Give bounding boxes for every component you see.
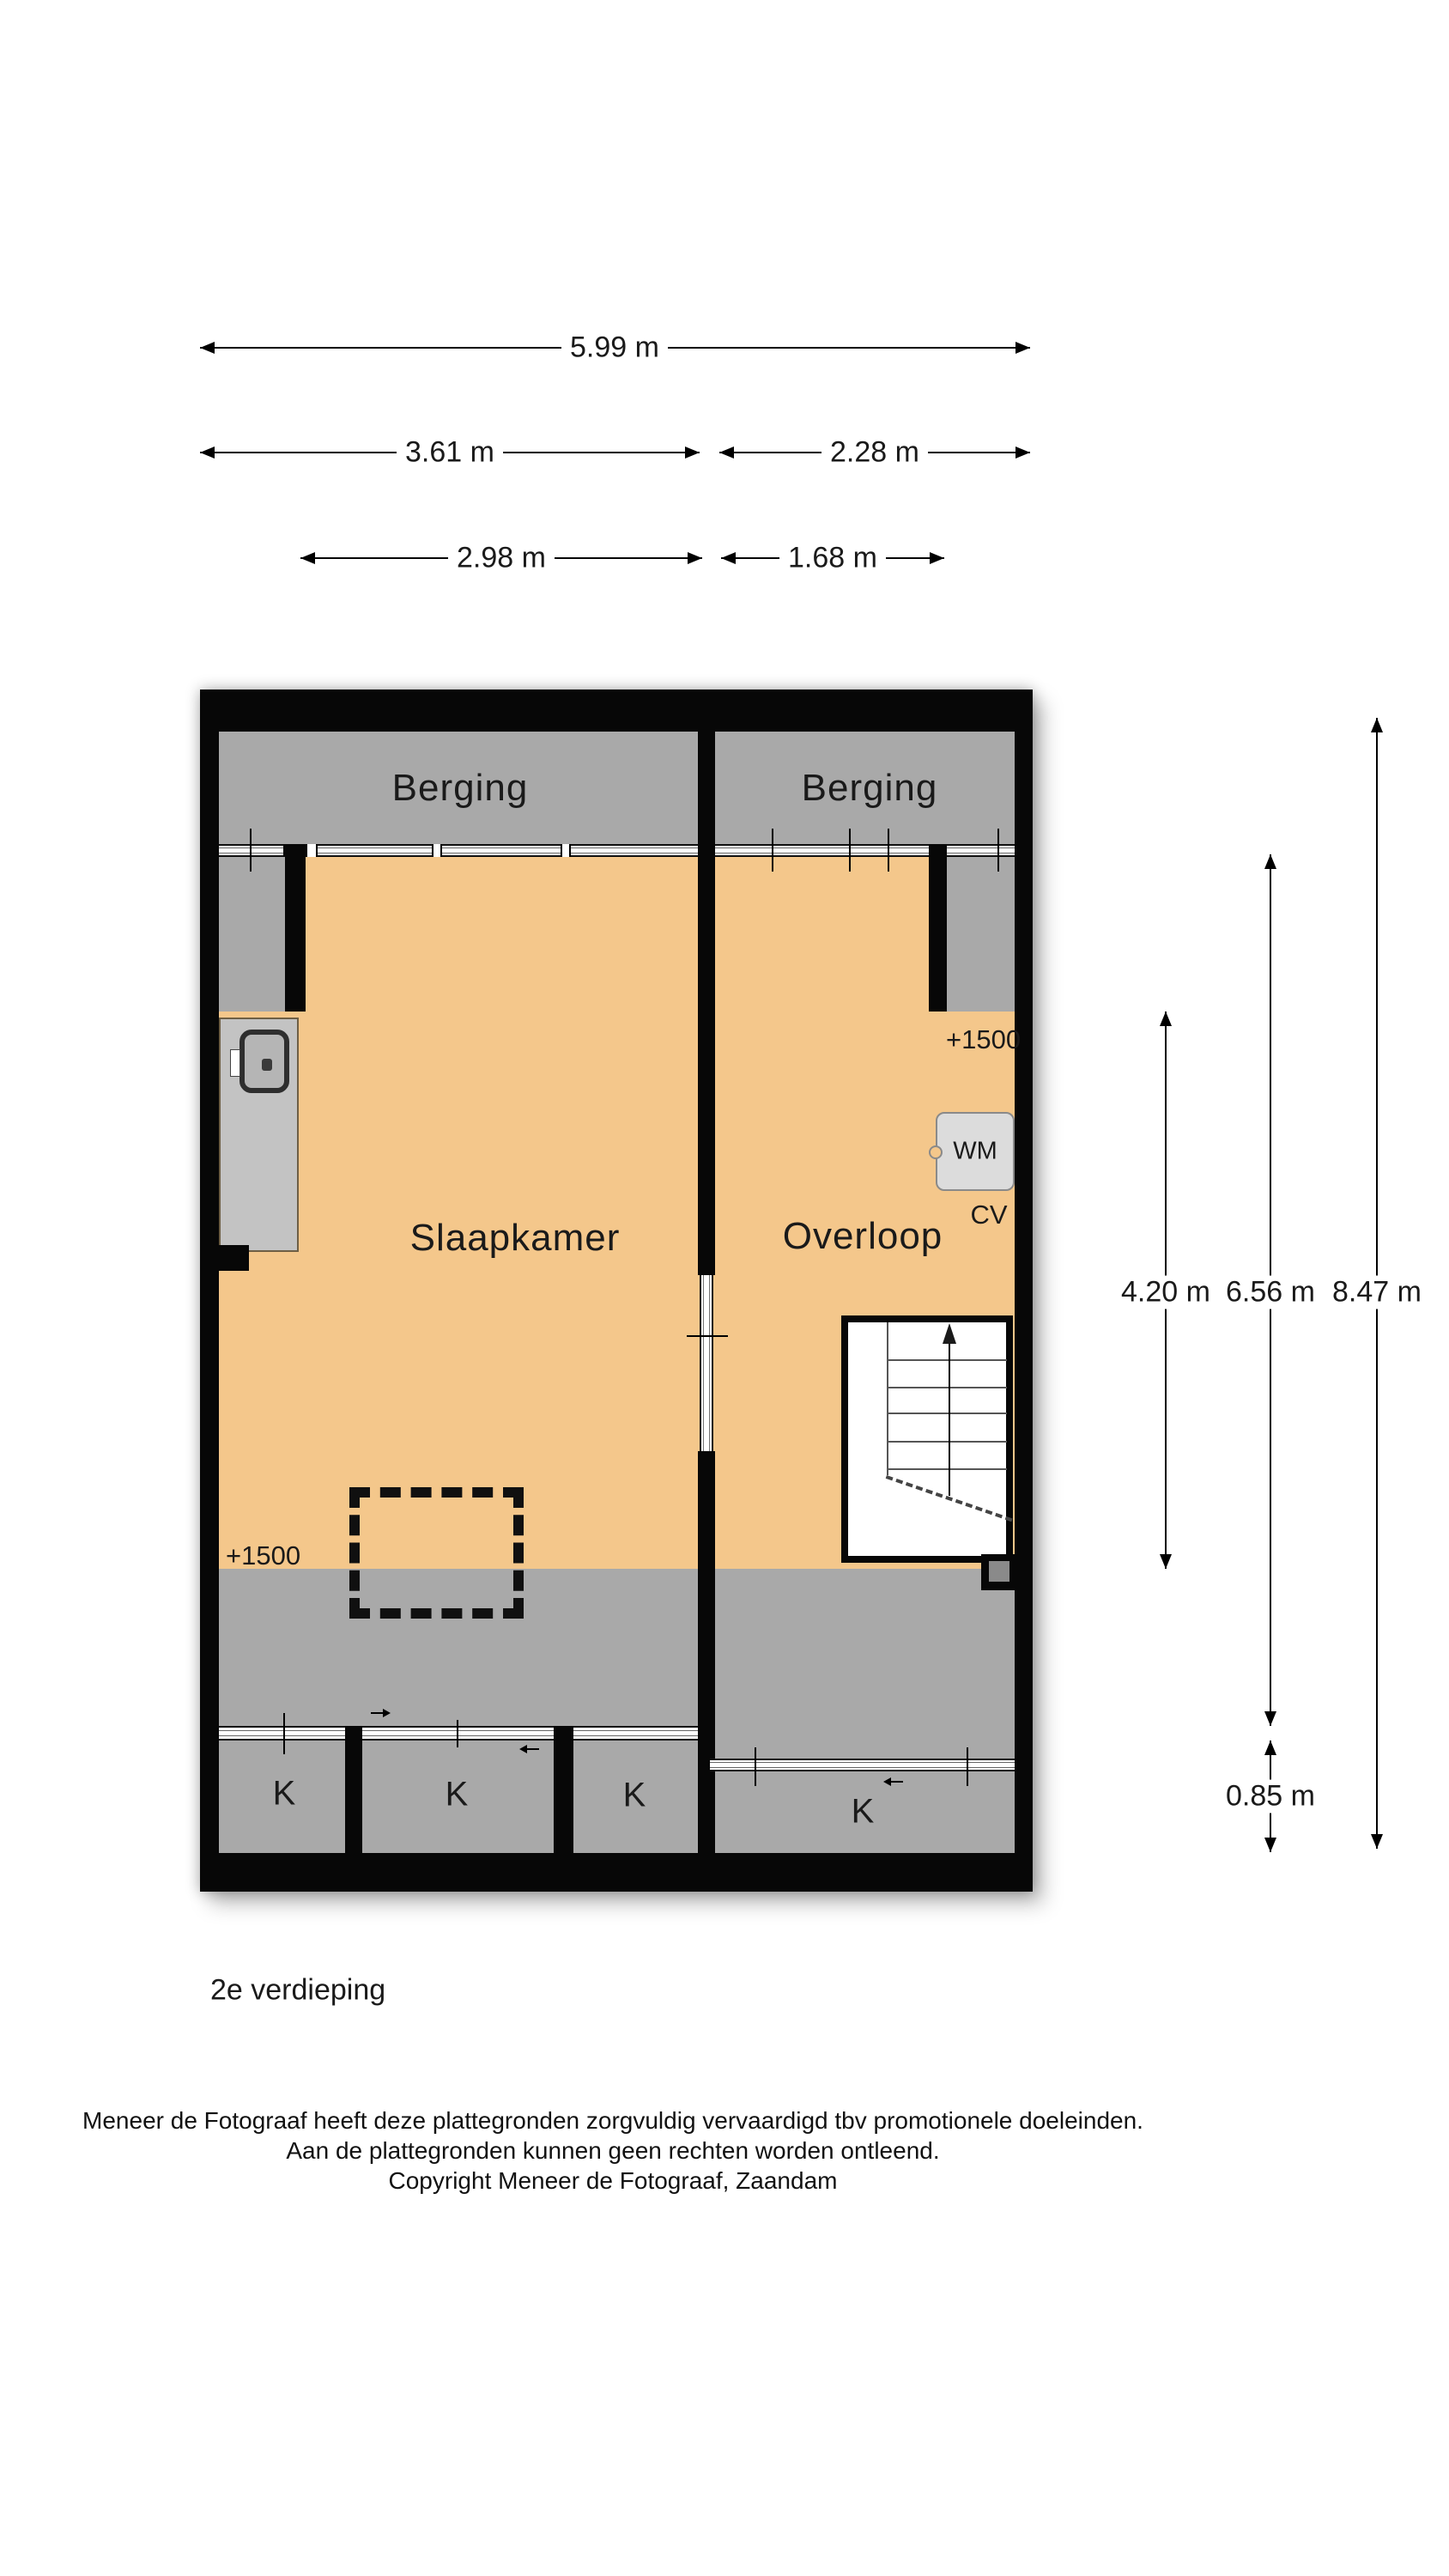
window-top-left	[318, 844, 698, 857]
koof-label-3: K	[623, 1777, 646, 1815]
tick-mark	[967, 1747, 968, 1786]
lowered-zone-bottom	[219, 1569, 1015, 1853]
dimension-label: 2.98 m	[448, 542, 555, 575]
window-top-far-right	[947, 844, 1015, 857]
stair-tread	[887, 1387, 1007, 1388]
tick-mark	[755, 1747, 756, 1786]
window-top-right	[715, 844, 929, 857]
mini-arrow-left-icon	[883, 1777, 891, 1786]
room-label-berging-left: Berging	[392, 767, 529, 810]
height-marker-left: +1500	[226, 1540, 300, 1571]
arrow-left-icon	[200, 342, 215, 354]
opening-tick	[687, 1335, 728, 1337]
stair-tread	[887, 1468, 1007, 1470]
arrow-left-icon	[721, 552, 736, 564]
mini-arrow-line	[371, 1712, 383, 1714]
arrow-right-icon	[1016, 447, 1030, 459]
staircase	[841, 1315, 1013, 1563]
roof-window-knob-icon	[262, 1059, 272, 1071]
wall-middle-lower	[698, 1451, 715, 1853]
arrow-up-icon	[1371, 718, 1383, 732]
lowered-strip-right	[947, 857, 1015, 1012]
disclaimer: Meneer de Fotograaf heeft deze plattegro…	[82, 2105, 1143, 2196]
mini-arrow-left-icon	[519, 1745, 527, 1753]
arrow-up-icon	[1160, 1012, 1172, 1026]
wall-post-right	[929, 844, 947, 1012]
arrow-left-icon	[200, 447, 215, 459]
wall-koof-divider-1	[345, 1726, 362, 1853]
floor-title: 2e verdieping	[210, 1974, 385, 2008]
height-marker-right: +1500	[946, 1024, 1021, 1055]
label-wm: WM	[953, 1138, 997, 1166]
dimension-label: 1.68 m	[779, 542, 886, 575]
stair-tread	[887, 1441, 1007, 1443]
koof-label-1: K	[273, 1775, 296, 1814]
arrow-up-icon	[1264, 854, 1276, 869]
wall-stub-left	[200, 1245, 249, 1271]
room-label-slaapkamer: Slaapkamer	[410, 1217, 621, 1260]
mini-arrow-line	[891, 1781, 903, 1783]
arrow-down-icon	[1264, 1711, 1276, 1726]
arrow-down-icon	[1264, 1838, 1276, 1852]
room-label-overloop: Overloop	[783, 1215, 943, 1258]
arrow-down-icon	[1160, 1554, 1172, 1569]
dashed-contour	[349, 1487, 524, 1619]
mini-arrow-right-icon	[383, 1709, 391, 1717]
wall-middle-upper	[698, 732, 715, 1275]
arrow-right-icon	[685, 447, 700, 459]
duct-inset	[989, 1561, 1009, 1582]
window-mullion	[432, 844, 442, 857]
lowered-strip-left	[219, 857, 292, 1012]
tick-mark	[250, 829, 252, 872]
arrow-up-icon	[1264, 1741, 1276, 1755]
dimension-label: 2.28 m	[822, 436, 928, 470]
dimension-label: 4.20 m	[1113, 1276, 1219, 1309]
dimension-label: 3.61 m	[397, 436, 503, 470]
stair-tread	[887, 1413, 1007, 1414]
disclaimer-line-3: Copyright Meneer de Fotograaf, Zaandam	[82, 2166, 1143, 2196]
arrow-right-icon	[930, 552, 944, 564]
arrow-left-icon	[300, 552, 315, 564]
tick-mark	[457, 1720, 458, 1747]
dimension-label: 8.47 m	[1324, 1276, 1430, 1309]
dimension-label: 0.85 m	[1217, 1780, 1324, 1814]
window-bottom-3	[573, 1726, 698, 1741]
tick-mark	[283, 1713, 285, 1754]
dimension-label: 5.99 m	[561, 331, 668, 365]
koof-label-4: K	[852, 1793, 875, 1832]
roof-window-handle-icon	[230, 1049, 240, 1077]
tick-mark	[888, 829, 889, 872]
room-label-berging-right: Berging	[802, 767, 938, 810]
arrow-right-icon	[688, 552, 702, 564]
dimension-label: 6.56 m	[1217, 1276, 1324, 1309]
door-opening	[700, 1275, 713, 1451]
stairs-arrow-line	[949, 1341, 950, 1496]
arrow-left-icon	[719, 447, 734, 459]
disclaimer-line-1: Meneer de Fotograaf heeft deze plattegro…	[82, 2105, 1143, 2136]
window-bottom-1	[219, 1726, 345, 1741]
tick-mark	[997, 829, 999, 872]
tick-mark	[772, 829, 773, 872]
stair-tread	[887, 1359, 1007, 1361]
stairs-up-arrow-icon	[943, 1323, 956, 1344]
floorplan-page: 5.99 m 3.61 m 2.28 m 2.98 m 1.68 m 4.20 …	[0, 0, 1449, 2576]
arrow-down-icon	[1371, 1834, 1383, 1849]
tick-mark	[849, 829, 851, 872]
window-mullion	[306, 844, 318, 857]
mini-arrow-line	[527, 1748, 539, 1750]
wall-post-left	[285, 844, 306, 1012]
washing-machine-notch	[929, 1145, 943, 1159]
arrow-right-icon	[1016, 342, 1030, 354]
floorplan-canvas: Berging Berging Slaapkamer Overloop WM C…	[200, 690, 1033, 1892]
label-cv: CV	[970, 1200, 1007, 1230]
wall-koof-divider-2	[554, 1726, 573, 1853]
disclaimer-line-2: Aan de plattegronden kunnen geen rechten…	[82, 2136, 1143, 2166]
window-mullion	[561, 844, 571, 857]
stairs-edge-line	[887, 1322, 888, 1475]
koof-label-2: K	[446, 1776, 469, 1814]
